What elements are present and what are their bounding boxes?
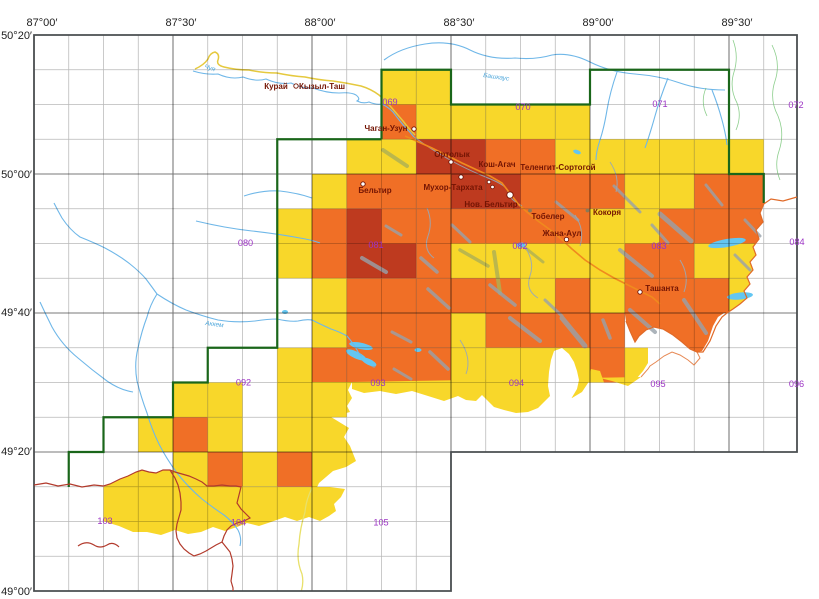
svg-text:88°30′: 88°30′	[444, 17, 475, 29]
svg-text:Ташанта: Ташанта	[645, 284, 679, 293]
svg-text:082: 082	[512, 241, 527, 251]
svg-text:083: 083	[651, 241, 666, 251]
svg-text:071: 071	[652, 99, 667, 109]
svg-text:87°00′: 87°00′	[27, 17, 58, 29]
svg-text:Бельтир: Бельтир	[358, 186, 391, 195]
svg-text:081: 081	[368, 240, 383, 250]
svg-text:070: 070	[515, 102, 530, 112]
svg-text:Кызыл-Таш: Кызыл-Таш	[299, 82, 345, 91]
svg-text:Нов. Бельтир: Нов. Бельтир	[464, 200, 517, 209]
svg-text:Тобелер: Тобелер	[532, 212, 565, 221]
svg-text:084: 084	[789, 237, 804, 247]
svg-text:87°30′: 87°30′	[166, 17, 197, 29]
svg-text:49°00′: 49°00′	[1, 586, 32, 598]
svg-text:103: 103	[97, 516, 112, 526]
svg-text:50°20′: 50°20′	[1, 30, 32, 42]
svg-text:095: 095	[650, 379, 665, 389]
svg-text:104: 104	[231, 518, 246, 528]
svg-text:094: 094	[509, 378, 524, 388]
svg-text:Кош-Агач: Кош-Агач	[478, 160, 515, 169]
svg-text:093: 093	[370, 378, 385, 388]
svg-text:49°40′: 49°40′	[1, 307, 32, 319]
svg-text:89°30′: 89°30′	[722, 17, 753, 29]
svg-text:092: 092	[236, 378, 251, 388]
svg-text:89°00′: 89°00′	[583, 17, 614, 29]
svg-text:49°20′: 49°20′	[1, 446, 32, 458]
svg-text:105: 105	[373, 518, 388, 528]
svg-text:Жана-Аул: Жана-Аул	[542, 229, 582, 238]
svg-text:072: 072	[788, 100, 803, 110]
svg-text:069: 069	[382, 97, 397, 107]
svg-text:Ортолык: Ортолык	[434, 150, 470, 159]
svg-text:Чаган-Узун: Чаган-Узун	[365, 124, 408, 133]
svg-text:88°00′: 88°00′	[305, 17, 336, 29]
svg-text:Курай: Курай	[264, 82, 288, 91]
svg-text:Мухор-Тархата: Мухор-Тархата	[423, 183, 483, 192]
svg-text:50°00′: 50°00′	[1, 169, 32, 181]
svg-text:096: 096	[789, 379, 804, 389]
svg-text:Теленгит-Сортогой: Теленгит-Сортогой	[520, 163, 595, 172]
svg-text:Кокоря: Кокоря	[593, 208, 621, 217]
svg-text:080: 080	[238, 238, 253, 248]
